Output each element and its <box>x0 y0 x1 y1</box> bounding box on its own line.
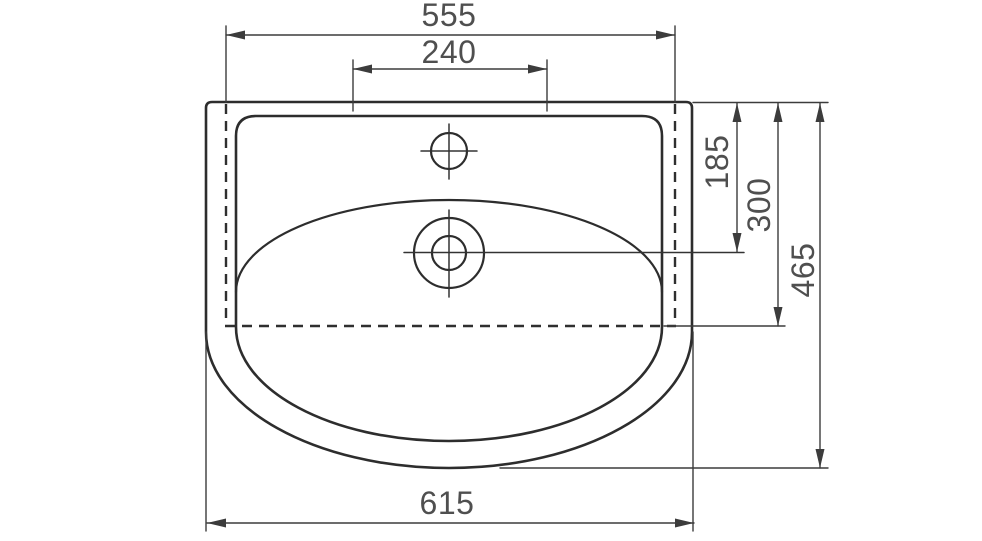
drawing-canvas: 555 240 615 185 300 <box>0 0 982 541</box>
arrowhead-down <box>774 307 783 326</box>
arrowhead-left <box>207 519 226 528</box>
dimension-faucet-deck-width: 240 <box>353 34 547 74</box>
arrowhead-right <box>528 65 547 74</box>
dimension-hidden-edge-depth: 300 <box>741 103 783 326</box>
faucet-hole <box>421 124 477 179</box>
dimension-overall-depth: 465 <box>785 103 825 468</box>
arrowhead-down <box>816 449 825 468</box>
sink-technical-drawing: 555 240 615 185 300 <box>0 0 982 541</box>
arrowhead-left <box>226 31 245 40</box>
arrowhead-up <box>816 103 825 122</box>
dimension-label-240: 240 <box>422 34 477 70</box>
arrowhead-right <box>656 31 675 40</box>
dimension-label-465: 465 <box>785 243 821 298</box>
dimension-label-185: 185 <box>699 135 735 190</box>
arrowhead-down <box>733 233 742 252</box>
dimension-label-300: 300 <box>741 178 777 233</box>
dimension-max-width: 615 <box>207 485 694 528</box>
dimension-label-615: 615 <box>420 485 475 521</box>
dimension-drain-center-depth: 185 <box>699 103 742 252</box>
arrowhead-right <box>675 519 694 528</box>
hidden-edges <box>225 104 676 326</box>
arrowhead-up <box>733 103 742 122</box>
dimension-label-555: 555 <box>422 0 477 33</box>
arrowhead-left <box>353 65 372 74</box>
arrowhead-up <box>774 103 783 122</box>
